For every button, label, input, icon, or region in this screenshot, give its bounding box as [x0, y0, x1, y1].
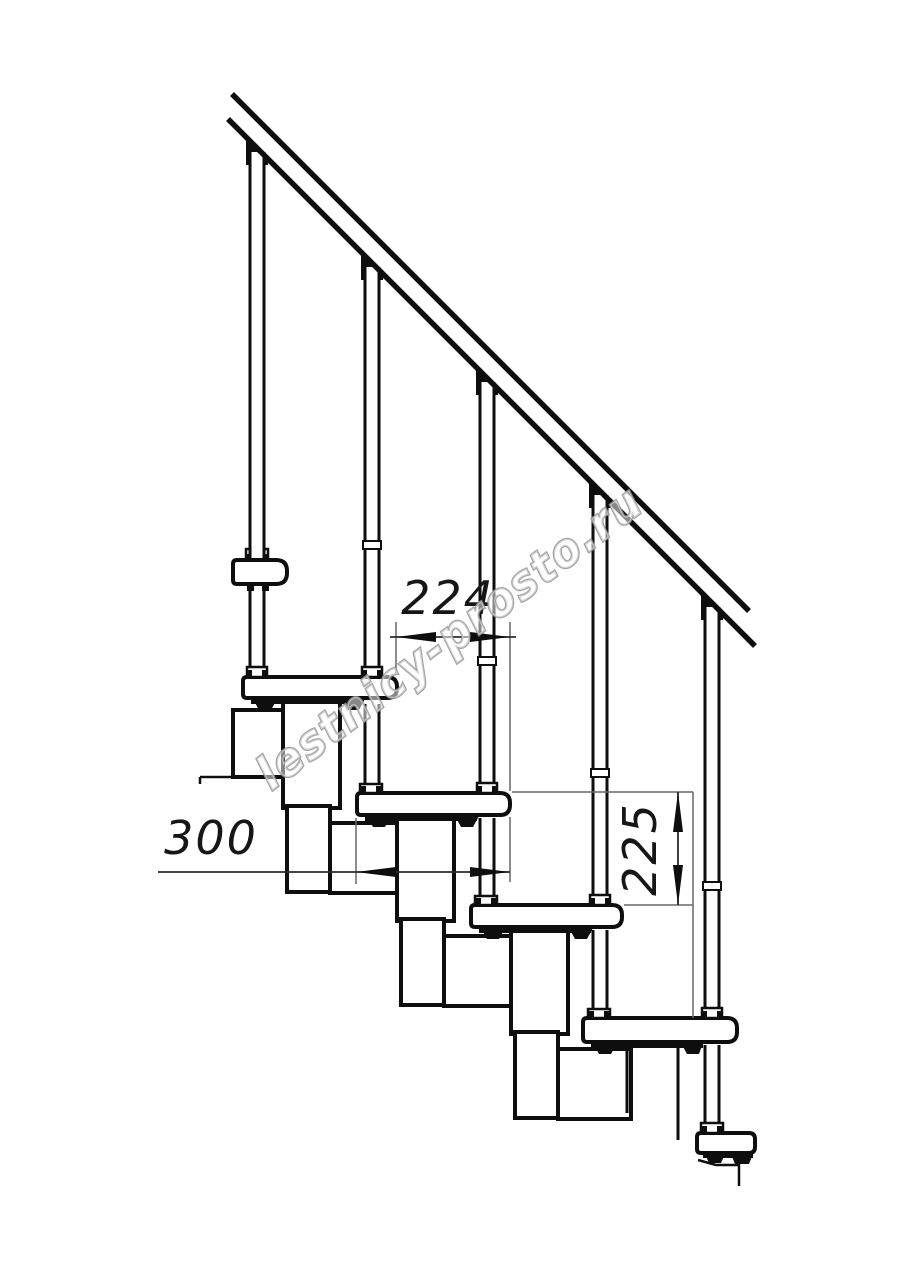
step-3: [471, 905, 622, 927]
foot: [477, 783, 497, 793]
baluster-joint: [591, 769, 609, 777]
baluster-2-body: [365, 267, 379, 677]
riser-lines-bottom: [627, 1042, 678, 1140]
bracket-clamp: [247, 584, 254, 591]
bracket-slab: [233, 560, 287, 584]
floor-pad: [697, 1133, 755, 1153]
mount-clamp: [731, 1154, 753, 1164]
module-box: [558, 1049, 631, 1119]
arrowhead-right: [470, 867, 510, 877]
foot: [360, 784, 382, 793]
mount-clamp: [569, 928, 593, 939]
arrowhead-up: [673, 792, 683, 832]
dimension-label-225: 225: [613, 802, 667, 896]
riser-box: [511, 928, 568, 1034]
dimension-label-300: 300: [164, 811, 258, 865]
module-box: [330, 823, 403, 893]
riser-tube: [401, 919, 444, 1005]
staircase-side-elevation-drawing: 224 300 225 lestnicy-prosto.ru: [0, 0, 914, 1280]
foot: [475, 896, 497, 905]
baluster-joint: [478, 657, 496, 665]
arrowhead-down: [673, 865, 683, 905]
mount-clamp: [455, 816, 479, 827]
foot: [702, 1008, 722, 1018]
baluster-5-body: [705, 607, 719, 1018]
riser-tube: [287, 806, 330, 892]
baluster-4-lower: [593, 930, 607, 1009]
dimension-225: 225: [613, 792, 683, 905]
module-box-top-lip: [200, 777, 233, 784]
foot: [590, 895, 610, 905]
baluster-3-lower: [480, 818, 494, 896]
floor-edge-line: [698, 1160, 739, 1186]
riser-box: [397, 815, 454, 921]
baluster-joint: [363, 541, 381, 549]
mount-clamp: [681, 1043, 703, 1054]
step-2: [357, 793, 510, 815]
baluster-5-lower: [705, 1045, 719, 1124]
module-box: [444, 936, 517, 1006]
baluster-joint: [703, 882, 721, 890]
bracket-clamp: [262, 584, 269, 591]
baluster-1-body: [250, 152, 264, 677]
foot: [588, 1009, 610, 1018]
foot: [247, 667, 267, 677]
foot: [701, 1123, 723, 1133]
drawing-canvas: 224 300 225 lestnicy-prosto.ru: [0, 0, 914, 1280]
step-4: [583, 1018, 737, 1042]
riser-tube: [515, 1032, 558, 1118]
